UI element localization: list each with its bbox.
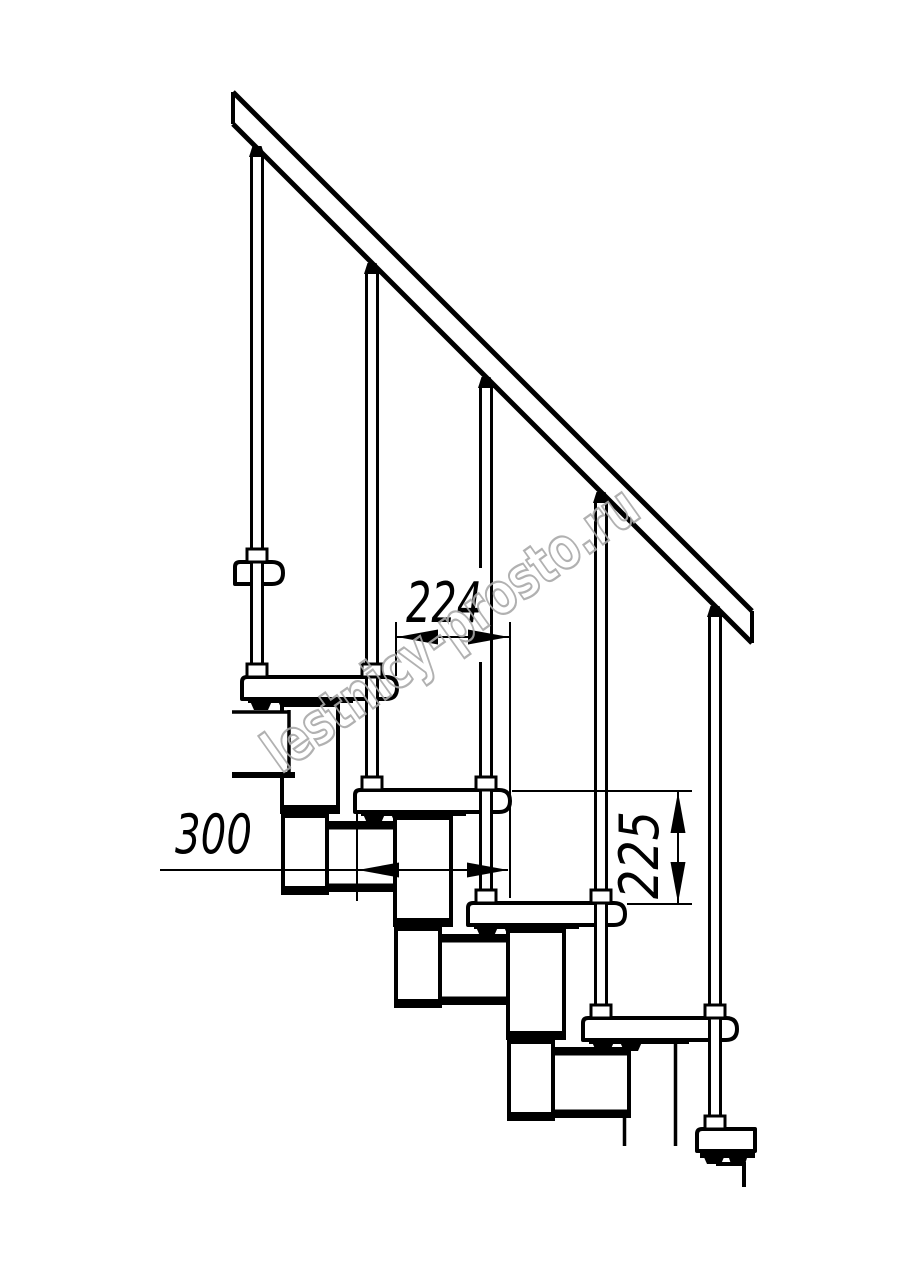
arrowhead-down-icon (671, 862, 686, 903)
watermark-text: lestnicy-prosto.ru (250, 472, 652, 786)
baluster-5 (705, 606, 725, 1129)
drawing-svg: 224 300 225 lestnicy-prosto.ru (0, 0, 914, 1280)
dimension-rise-label: 225 (608, 811, 671, 899)
dimension-depth-label: 300 (175, 803, 252, 866)
module-chain-step5-column (625, 1042, 676, 1146)
module-chain-step6 (700, 1149, 755, 1187)
tread-6 (697, 1129, 755, 1151)
staircase-technical-drawing: 224 300 225 lestnicy-prosto.ru (0, 0, 914, 1280)
baluster-4 (591, 492, 611, 1018)
baluster-1 (247, 146, 267, 677)
arrowhead-up-icon (671, 792, 686, 833)
